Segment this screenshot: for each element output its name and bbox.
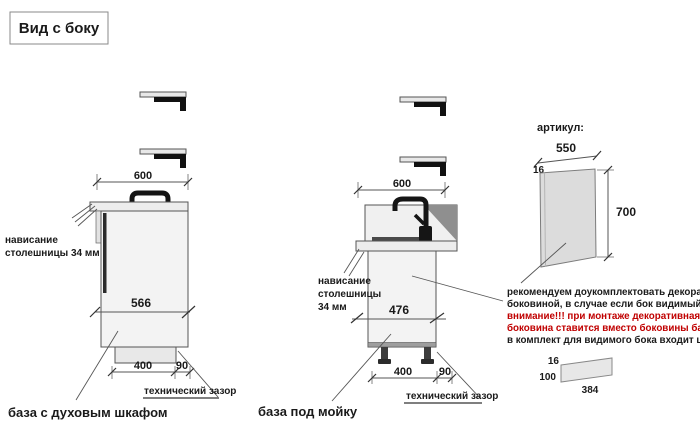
cabinet-body [101, 211, 188, 347]
dimension-value: 400 [134, 360, 152, 372]
dimension-value: 90 [439, 366, 451, 378]
countertop [356, 241, 457, 251]
cabinet-caption: база под мойку [258, 404, 358, 419]
shelf-bracket-drop [180, 154, 186, 168]
dimension-value: 400 [394, 366, 412, 378]
wall-shelf-bottom [400, 157, 446, 176]
shelf-bracket-drop [440, 162, 446, 176]
plinth-strip [561, 358, 612, 382]
faucet-body [419, 226, 432, 242]
overhang-label-line1: нависание [318, 276, 371, 287]
technical-gap-label: технический зазор [406, 391, 498, 402]
dimension-bottom-400-90: 400 90 [368, 366, 456, 384]
leg-foot [421, 359, 434, 364]
oven-door-edge [103, 213, 107, 293]
dimension-value: 476 [389, 303, 409, 317]
dimension-value: 566 [131, 296, 151, 310]
decorative-side-panel-section: артикул: 550 16 700 рекомендуем доукомпл… [507, 122, 700, 396]
plinth-strip-item: 16 100 384 [539, 356, 612, 396]
oven-panel-edge [96, 211, 101, 243]
dimension-value: 600 [393, 178, 411, 190]
note-line-2: боковиной, в случае если бок видимый [507, 299, 700, 310]
shelf-board [400, 157, 446, 162]
adjustable-legs [378, 347, 434, 364]
dimension-panel-700: 700 [597, 166, 636, 261]
note-line-3: в комплект для видимого бока входит цоко… [507, 335, 700, 346]
leg-stem [381, 347, 388, 360]
recommendation-note: рекомендуем доукомплектовать декоративно… [507, 287, 700, 346]
shelf-board [140, 92, 186, 97]
wall-shelf-bottom [140, 149, 186, 168]
title-box: Вид с боку [10, 12, 108, 44]
caption-leader [332, 334, 391, 401]
dimension-value: 550 [556, 141, 576, 155]
overhang-label-line3: 34 мм [318, 302, 347, 313]
shelf-bracket-drop [180, 97, 186, 111]
dimension-width-600: 600 [93, 170, 192, 190]
overhang-note: нависание столешницы 34 мм [5, 204, 100, 259]
dimension-tick [351, 313, 363, 323]
drawing-canvas: Вид с боку 600 [0, 0, 700, 428]
oven-handle [132, 193, 168, 202]
overhang-label-line2: столешницы [318, 289, 381, 300]
shelf-board [140, 149, 186, 154]
leg-foot [378, 359, 391, 364]
warning-line-1: внимание!!! при монтаже декоративная [507, 311, 700, 322]
wall-shelf-top [140, 92, 186, 111]
plinth-thickness-value: 16 [548, 356, 560, 367]
dimension-line [538, 156, 597, 163]
overhang-label-line1: нависание [5, 235, 58, 246]
leader-line [349, 252, 364, 276]
caption-leader [76, 331, 118, 400]
shelf-bracket-drop [440, 102, 446, 116]
countertop [90, 202, 188, 211]
overhang-label-line2: столешницы 34 мм [5, 248, 100, 259]
dimension-value: 600 [134, 170, 152, 182]
warning-line-2: боковина ставится вместо боковины базы л… [507, 323, 700, 334]
article-heading: артикул: [537, 122, 584, 134]
plinth-height-value: 100 [539, 372, 556, 383]
plinth-length-value: 384 [582, 385, 599, 396]
page-title: Вид с боку [19, 20, 100, 37]
dimension-value: 90 [176, 360, 188, 372]
sink-rim-edge [372, 237, 425, 241]
sink-base-cabinet: 600 476 [258, 97, 503, 419]
wall-shelf-top [400, 97, 446, 116]
technical-gap-label: технический зазор [144, 386, 236, 397]
oven-base-cabinet: 600 566 400 90 [5, 92, 236, 420]
side-view-drawing: Вид с боку 600 [0, 0, 700, 428]
shelf-board [400, 97, 446, 102]
cabinet-bottom-strip [368, 343, 436, 348]
note-line-1: рекомендуем доукомплектовать декоративно… [507, 287, 700, 298]
dimension-tick [593, 151, 601, 160]
decorative-panel [540, 169, 596, 267]
dimension-panel-550: 550 [534, 141, 601, 167]
leader-line [344, 249, 359, 273]
cabinet-caption: база с духовым шкафом [8, 405, 168, 420]
leg-stem [424, 347, 431, 360]
dimension-width-600: 600 [354, 178, 449, 198]
dimension-value: 700 [616, 205, 636, 219]
